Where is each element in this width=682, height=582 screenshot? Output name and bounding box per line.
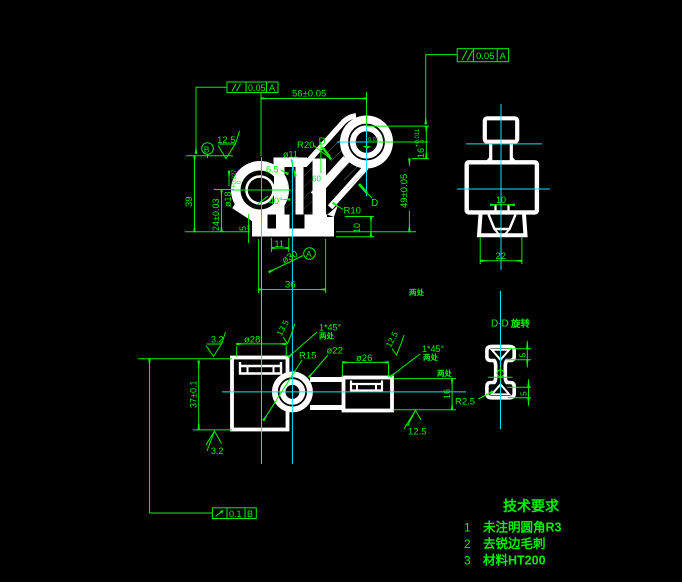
svg-text:未注明圆角R3: 未注明圆角R3 — [482, 520, 562, 535]
svg-text:5: 5 — [238, 226, 248, 231]
svg-text:11: 11 — [275, 239, 284, 249]
svg-text:A: A — [500, 51, 507, 62]
svg-text:ø18: ø18 — [223, 191, 233, 207]
svg-text:40°: 40° — [269, 196, 283, 206]
svg-text:5: 5 — [519, 391, 529, 396]
svg-text:5: 5 — [518, 353, 528, 358]
svg-text:49±0.05: 49±0.05 — [399, 174, 410, 208]
svg-text:A: A — [269, 83, 275, 93]
svg-text:36: 36 — [285, 280, 296, 291]
svg-text:3.2: 3.2 — [211, 446, 224, 456]
svg-text:旋转: 旋转 — [510, 318, 531, 330]
svg-text:12.5: 12.5 — [217, 135, 236, 146]
svg-text:1: 1 — [464, 521, 471, 535]
svg-text:60: 60 — [312, 175, 321, 184]
svg-text:10: 10 — [496, 195, 506, 205]
svg-text:56±0.05: 56±0.05 — [292, 89, 326, 100]
svg-text:材料HT200: 材料HT200 — [482, 553, 546, 568]
svg-text:0.05: 0.05 — [476, 51, 495, 62]
svg-text:ø26: ø26 — [356, 353, 372, 364]
svg-text:ø22: ø22 — [327, 346, 343, 357]
svg-text:ø11: ø11 — [283, 150, 298, 160]
svg-text:A: A — [306, 249, 312, 259]
svg-text:3.2: 3.2 — [211, 335, 224, 345]
svg-text:去锐边毛刺: 去锐边毛刺 — [483, 536, 546, 551]
svg-text:D-D: D-D — [491, 319, 509, 330]
svg-text:+0.027: +0.027 — [232, 169, 238, 188]
svg-text:两处: 两处 — [437, 368, 452, 378]
svg-text:R20: R20 — [297, 140, 314, 151]
svg-text:两处: 两处 — [409, 287, 424, 297]
svg-text:两处: 两处 — [319, 331, 334, 341]
svg-text:D: D — [371, 198, 378, 209]
svg-text:16: 16 — [416, 148, 426, 158]
svg-text:3: 3 — [464, 554, 471, 568]
svg-text:0.05: 0.05 — [248, 83, 266, 93]
svg-text:0.1: 0.1 — [229, 509, 242, 519]
svg-text:16: 16 — [442, 389, 452, 399]
svg-text:B: B — [247, 509, 253, 519]
svg-text:R2.5: R2.5 — [455, 397, 475, 408]
svg-text:24±0.03: 24±0.03 — [211, 199, 221, 231]
svg-text:两处: 两处 — [423, 352, 438, 362]
svg-text:B: B — [204, 144, 210, 154]
svg-text:D: D — [319, 137, 326, 148]
svg-text:39: 39 — [184, 196, 195, 207]
svg-text:6.5: 6.5 — [266, 165, 279, 175]
svg-text:+0.011: +0.011 — [415, 128, 421, 147]
svg-text:技术要求: 技术要求 — [503, 498, 560, 514]
svg-text:ø28: ø28 — [244, 335, 260, 346]
svg-text:37±0.1: 37±0.1 — [189, 381, 199, 408]
svg-text:22: 22 — [496, 251, 507, 262]
svg-text:R10: R10 — [344, 206, 361, 217]
svg-text:2: 2 — [464, 537, 471, 551]
svg-text:12.5: 12.5 — [408, 427, 427, 438]
